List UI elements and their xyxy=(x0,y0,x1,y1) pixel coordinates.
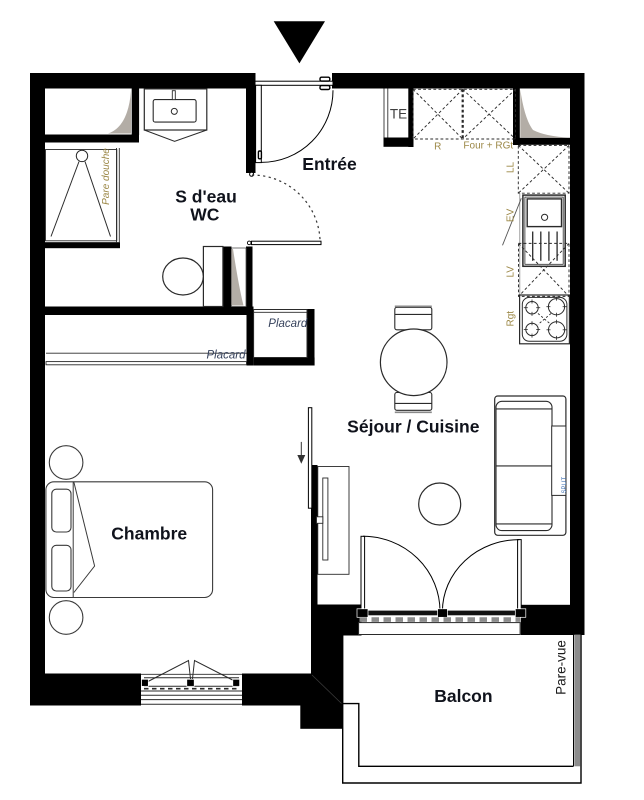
svg-text:LV: LV xyxy=(506,266,517,278)
svg-text:Entrée: Entrée xyxy=(302,154,357,174)
svg-text:Chambre: Chambre xyxy=(111,523,187,543)
svg-text:Pare-vue: Pare-vue xyxy=(554,640,569,695)
svg-text:SPLIT: SPLIT xyxy=(562,476,568,493)
svg-text:EV: EV xyxy=(506,208,517,222)
svg-text:Four + RGt: Four + RGt xyxy=(463,141,513,152)
svg-text:Rgt: Rgt xyxy=(506,311,517,327)
svg-text:Placard: Placard xyxy=(207,350,247,362)
svg-text:WC: WC xyxy=(190,205,220,225)
svg-text:TE: TE xyxy=(390,107,407,122)
svg-text:LL: LL xyxy=(506,162,517,174)
svg-text:Balcon: Balcon xyxy=(434,686,492,706)
svg-text:Séjour / Cuisine: Séjour / Cuisine xyxy=(347,416,480,436)
svg-text:Pare douche: Pare douche xyxy=(101,148,112,205)
svg-text:Placard: Placard xyxy=(268,318,308,330)
svg-text:R: R xyxy=(434,142,441,153)
